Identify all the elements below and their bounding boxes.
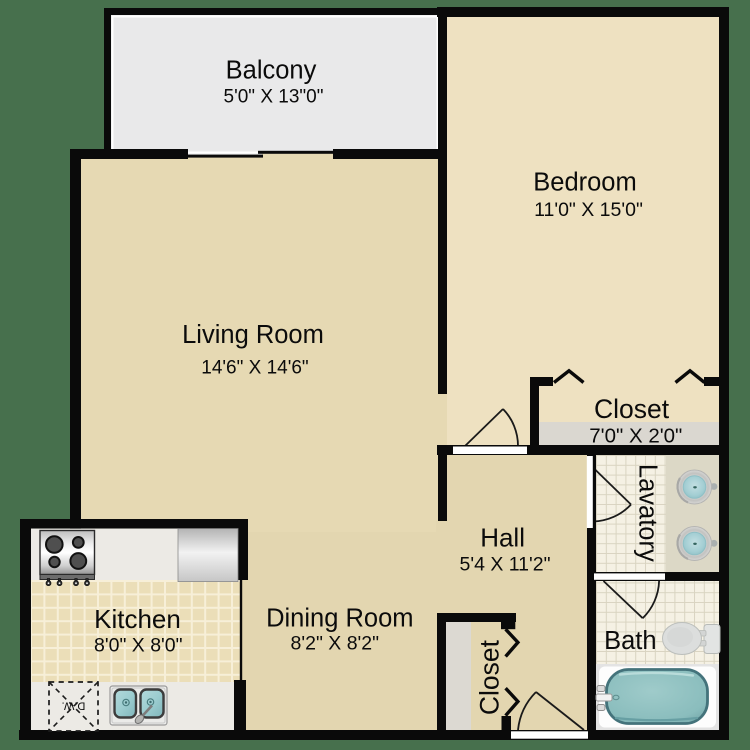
svg-text:8'0" X 8'0": 8'0" X 8'0" <box>94 635 183 657</box>
svg-text:Dining Room: Dining Room <box>266 605 413 633</box>
svg-text:11'0" X 15'0": 11'0" X 15'0" <box>534 199 643 221</box>
svg-text:Closet: Closet <box>474 639 504 715</box>
svg-text:5'0" X 13"0": 5'0" X 13"0" <box>224 86 324 107</box>
svg-text:Bath: Bath <box>604 627 656 655</box>
svg-text:Closet: Closet <box>594 394 670 424</box>
svg-text:5'4 X 11'2": 5'4 X 11'2" <box>460 554 551 576</box>
svg-text:D.W.: D.W. <box>62 700 86 712</box>
svg-text:14'6" X 14'6": 14'6" X 14'6" <box>201 357 308 378</box>
svg-text:Living Room: Living Room <box>182 321 324 349</box>
svg-text:Lavatory: Lavatory <box>634 464 662 562</box>
svg-text:7'0" X 2'0": 7'0" X 2'0" <box>589 425 682 448</box>
svg-text:Kitchen: Kitchen <box>94 604 181 634</box>
svg-text:Bedroom: Bedroom <box>533 168 636 196</box>
svg-text:8'2" X 8'2": 8'2" X 8'2" <box>291 633 380 655</box>
svg-text:Balcony: Balcony <box>226 57 317 85</box>
svg-text:Hall: Hall <box>480 523 525 553</box>
